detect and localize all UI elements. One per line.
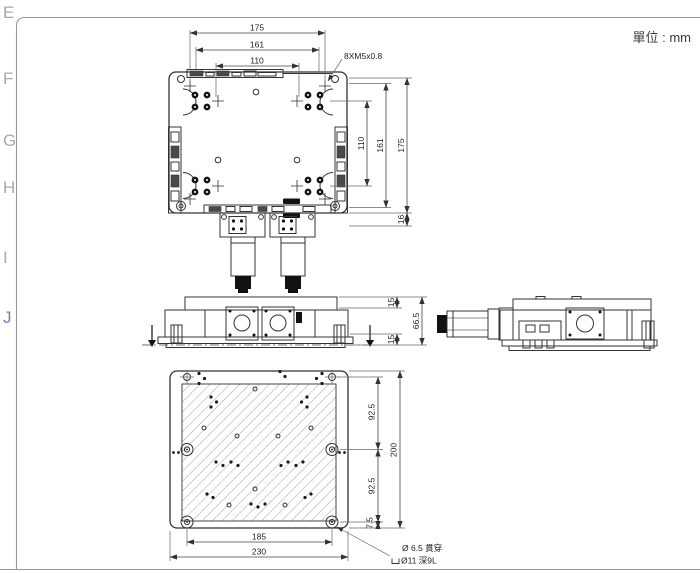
hole-note-line1: Ø 6.5 貫穿: [402, 543, 442, 553]
dim-175-top: 175: [250, 23, 264, 33]
dim-200: 200: [389, 443, 399, 457]
dim-7-5: 7.5: [365, 517, 375, 529]
dim-110-right: 110: [356, 136, 366, 150]
top-view-dimensions: 175 161 110 8XM5x0.8 110 161 175 16: [190, 23, 412, 227]
dim-161-right: 161: [375, 138, 385, 152]
side-view: [437, 297, 657, 351]
bottom-view: 92.5 92.5 7.5 200 185 230 Ø 6.5 貫穿 Ø11 深…: [170, 370, 442, 566]
thread-marks: [184, 80, 331, 205]
dim-161-top: 161: [250, 40, 264, 50]
dim-175-right: 175: [396, 138, 406, 152]
micrometer-knob: [437, 315, 447, 333]
dim-110-top: 110: [250, 56, 264, 66]
micrometer-drive-right: [270, 213, 315, 293]
micrometer-drive-left: [220, 213, 265, 293]
front-view: 15 66.5 15: [142, 297, 427, 348]
hatched-table-area: [182, 384, 336, 521]
thread-note: 8XM5x0.8: [344, 51, 383, 61]
counterbore-symbol: [392, 559, 399, 564]
dim-92-5-top: 92.5: [367, 403, 377, 420]
dim-185: 185: [252, 532, 266, 542]
dim-15-top: 15: [386, 298, 396, 308]
dim-66-5: 66.5: [411, 312, 421, 329]
dim-230: 230: [252, 547, 266, 557]
dim-16: 16: [396, 215, 406, 225]
drawing-canvas: 175 161 110 8XM5x0.8 110 161 175 16: [0, 0, 700, 573]
nameplate-label: [283, 199, 300, 205]
dim-15-bottom: 15: [386, 335, 396, 345]
dim-92-5-bottom: 92.5: [367, 477, 377, 494]
top-view: 175 161 110 8XM5x0.8 110 161 175 16: [169, 23, 413, 294]
hole-groups: [192, 92, 324, 196]
front-view-dimensions: 15 66.5 15: [339, 297, 427, 345]
sheet-frame: [0, 18, 700, 570]
hole-note-line2: Ø11 深9L: [401, 556, 437, 566]
